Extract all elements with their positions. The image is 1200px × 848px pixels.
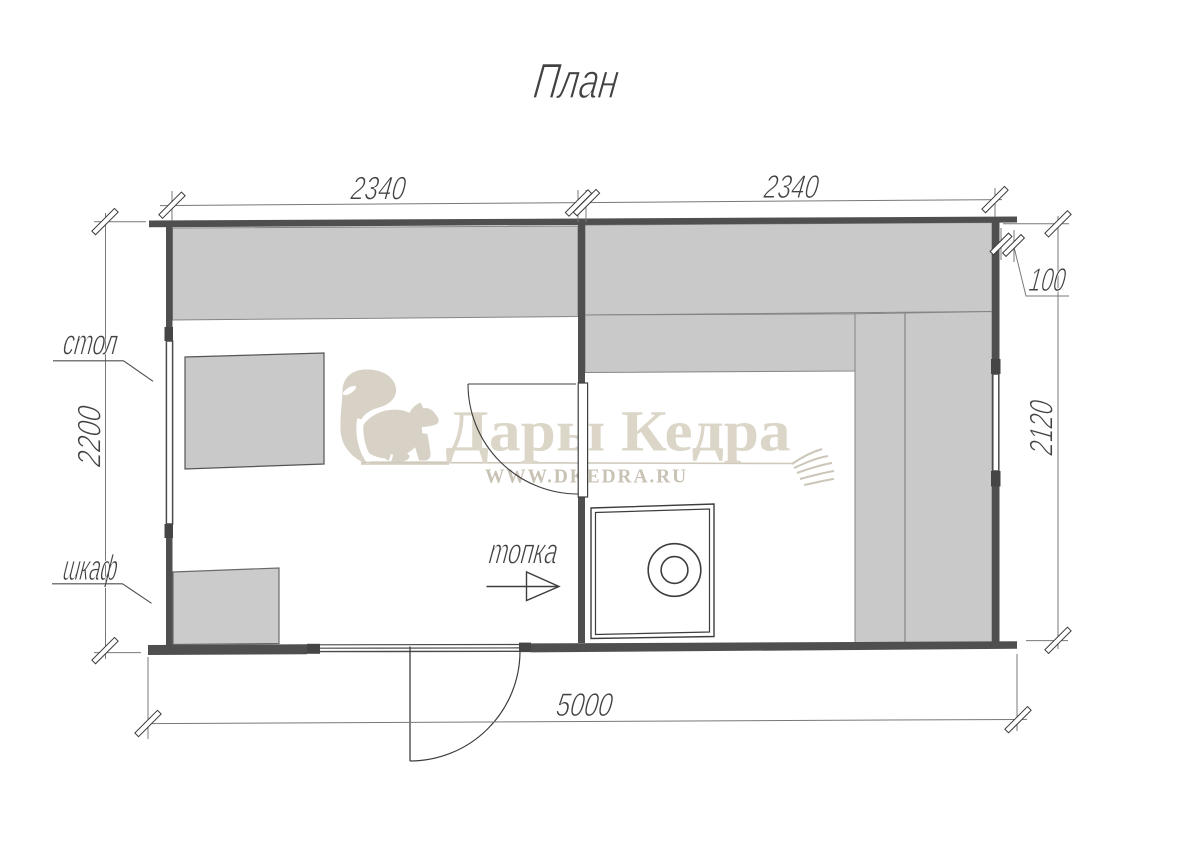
svg-text:Дары Кедра: Дары Кедра (446, 399, 791, 464)
svg-text:100: 100 (1027, 262, 1069, 299)
svg-text:5000: 5000 (554, 687, 616, 724)
svg-text:2200: 2200 (72, 403, 109, 469)
svg-text:шкаф: шкаф (61, 547, 121, 588)
svg-text:План: План (530, 53, 622, 109)
svg-text:2340: 2340 (761, 169, 821, 206)
svg-text:топка: топка (487, 531, 561, 572)
svg-text:2340: 2340 (348, 171, 408, 208)
svg-text:2120: 2120 (1024, 398, 1061, 458)
svg-text:стол: стол (61, 322, 121, 363)
